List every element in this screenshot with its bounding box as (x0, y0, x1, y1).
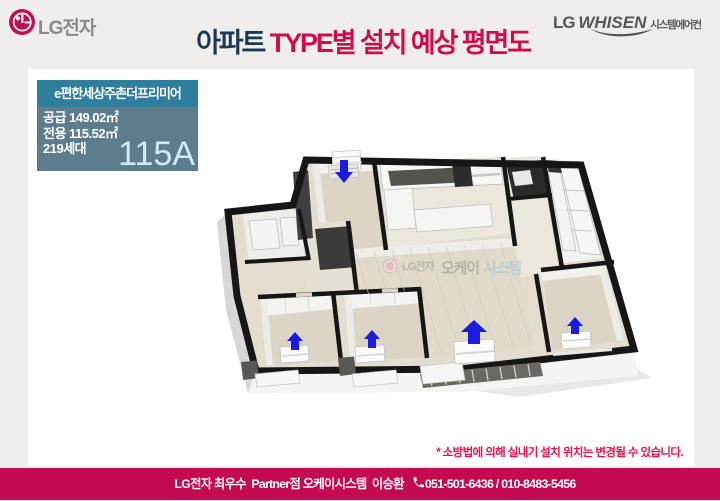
svg-text:LG전자: LG전자 (402, 259, 435, 273)
svg-text:시스템: 시스템 (483, 259, 521, 277)
svg-text:오케이: 오케이 (441, 260, 479, 277)
